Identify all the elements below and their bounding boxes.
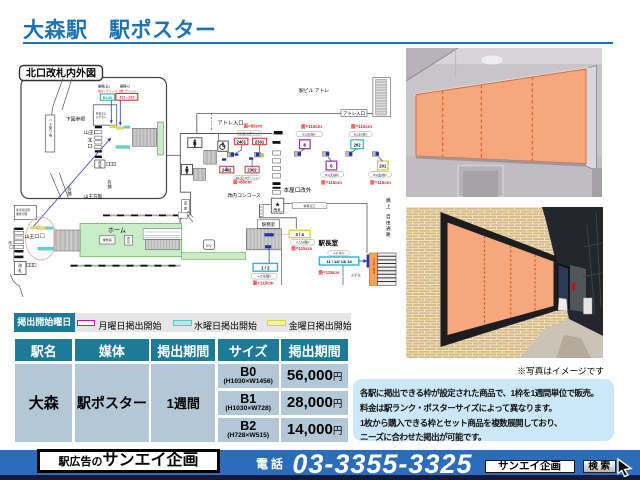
svg-text:面=115cm: 面=115cm — [370, 179, 391, 186]
svg-text:お手洗: お手洗 — [351, 273, 361, 278]
svg-text:面=115cm: 面=115cm — [301, 123, 322, 130]
svg-text:＋Z:B/階V: ＋Z:B/階V — [295, 240, 310, 245]
svg-text:3 / 4: 3 / 4 — [295, 232, 304, 237]
svg-text:山王方面: 山王方面 — [84, 193, 102, 200]
svg-text:改内コンコース: 改内コンコース — [228, 192, 262, 199]
svg-text:202: 202 — [354, 142, 362, 147]
svg-text:北: 北 — [88, 137, 93, 144]
svg-text:＋Z:水階V: ＋Z:水階V — [257, 274, 272, 279]
svg-text:乗降(五): 乗降(五) — [98, 84, 110, 89]
svg-text:B0(天) Bグリッド: B0(天) Bグリッド — [238, 130, 261, 135]
svg-text:駅務室: 駅務室 — [262, 221, 276, 228]
svg-text:B1(天)横V: B1(天)横V — [302, 132, 316, 137]
svg-text:面=85cm: 面=85cm — [244, 123, 263, 130]
svg-text:舗: 舗 — [108, 183, 112, 189]
svg-text:面=115cm: 面=115cm — [253, 280, 274, 287]
svg-text:札: 札 — [18, 268, 22, 273]
svg-text:改: 改 — [18, 263, 22, 268]
svg-text:201: 201 — [379, 164, 387, 169]
svg-text:2302: 2302 — [247, 167, 257, 172]
svg-text:(乗) グリッド: (乗) グリッド — [119, 88, 137, 93]
svg-text:舗: 舗 — [68, 190, 72, 196]
svg-text:お手洗い: お手洗い — [96, 115, 107, 119]
svg-text:面=115cm: 面=115cm — [321, 179, 342, 186]
svg-text:店: 店 — [127, 239, 130, 244]
svg-text:2301: 2301 — [255, 139, 265, 144]
svg-text:改札: 改札 — [273, 207, 281, 214]
svg-text:通: 通 — [386, 225, 391, 232]
svg-text:札: 札 — [98, 164, 102, 169]
svg-text:＋K.R/V: ＋K.R/V — [333, 252, 345, 256]
svg-text:橋: 橋 — [386, 197, 391, 204]
svg-text:路: 路 — [386, 231, 391, 238]
svg-text:上: 上 — [386, 203, 391, 209]
svg-text:バス乗り場: バス乗り場 — [48, 119, 52, 138]
svg-text:駅長室: 駅長室 — [319, 238, 339, 247]
svg-text:B1(天)横V: B1(天)横V — [325, 172, 339, 177]
svg-text:改: 改 — [9, 240, 13, 245]
svg-text:口: 口 — [88, 144, 93, 150]
svg-text:J21~J22: J21~J22 — [119, 95, 135, 100]
svg-text:2401: 2401 — [237, 139, 247, 144]
svg-text:EV: EV — [206, 243, 212, 248]
svg-text:北口改札内外図: 北口改札内外図 — [26, 67, 96, 80]
svg-text:乗務員: 乗務員 — [103, 237, 112, 242]
svg-text:1 / 2: 1 / 2 — [261, 265, 270, 270]
svg-text:11 / 12/ 13/ 14: 11 / 12/ 13/ 14 — [326, 259, 352, 264]
svg-text:ホーム: ホーム — [108, 228, 126, 235]
svg-text:書発行機: 書発行機 — [16, 212, 27, 216]
svg-text:B1(金)横V: B1(金)横V — [373, 172, 387, 177]
svg-text:自: 自 — [386, 213, 391, 220]
svg-text:アトレ入口: アトレ入口 — [218, 120, 244, 127]
svg-text:下図参照: 下図参照 — [66, 115, 85, 122]
svg-text:B1(水)横V: B1(水)横V — [354, 132, 368, 137]
svg-text:乗降×2: 乗降×2 — [120, 84, 130, 89]
svg-text:由: 由 — [386, 219, 391, 226]
svg-text:本屋口改外: 本屋口改外 — [284, 186, 312, 194]
svg-text:山王口: 山王口 — [25, 233, 40, 240]
svg-text:駅ビル アトレ: 駅ビル アトレ — [299, 87, 329, 94]
svg-text:B100: B100 — [103, 95, 113, 100]
svg-text:面=125cm: 面=125cm — [318, 269, 339, 276]
svg-text:ポスター掲出: ポスター掲出 — [372, 257, 375, 274]
svg-text:面=115cm: 面=115cm — [291, 245, 312, 252]
svg-text:面=85cm: 面=85cm — [233, 179, 252, 186]
svg-text:面=115cm: 面=115cm — [351, 123, 372, 130]
svg-text:掲(1) グリッド: 掲(1) グリッド — [98, 88, 118, 93]
svg-text:精算窓口: 精算窓口 — [303, 203, 315, 208]
